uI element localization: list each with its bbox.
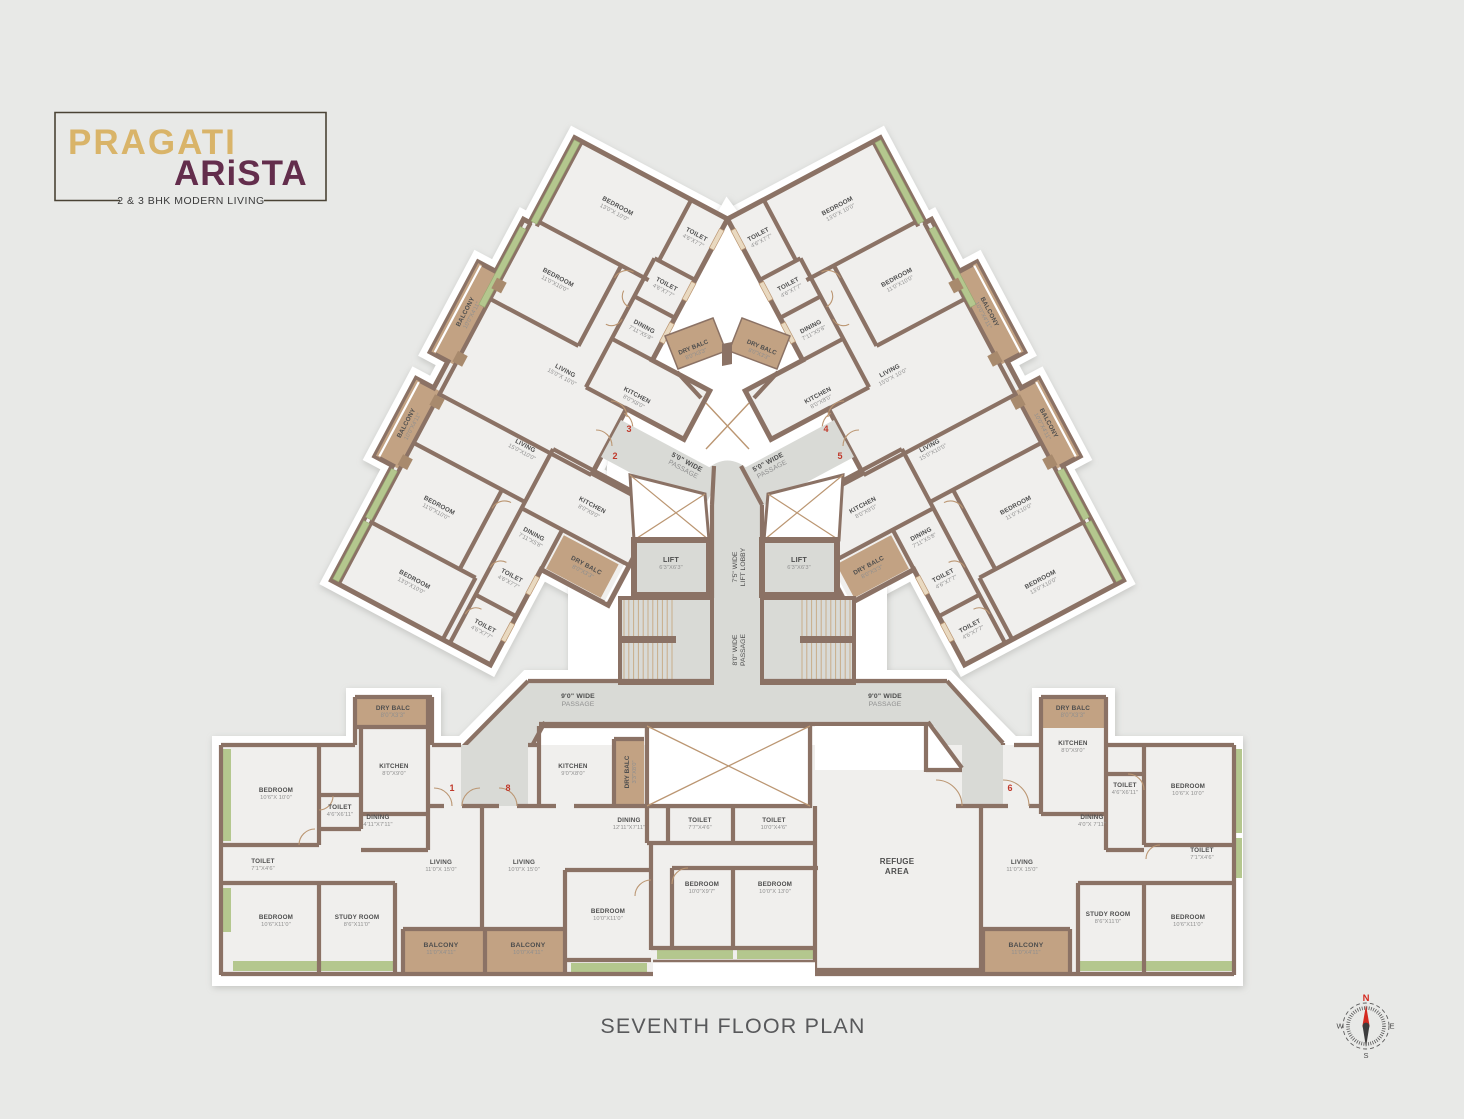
svg-text:10'0"X4'6": 10'0"X4'6" [761, 825, 788, 831]
svg-text:W: W [1336, 1022, 1344, 1031]
svg-text:AREA: AREA [885, 867, 909, 876]
svg-text:DINING: DINING [366, 814, 389, 821]
svg-text:BEDROOM: BEDROOM [259, 914, 293, 921]
svg-text:LIVING: LIVING [513, 859, 535, 866]
svg-text:S: S [1363, 1051, 1368, 1060]
svg-text:8'0"X3'3": 8'0"X3'3" [381, 713, 406, 719]
svg-text:BEDROOM: BEDROOM [259, 787, 293, 794]
svg-text:BEDROOM: BEDROOM [1171, 783, 1205, 790]
svg-text:KITCHEN: KITCHEN [558, 763, 588, 770]
svg-text:BALCONY: BALCONY [510, 942, 545, 949]
svg-text:DRY BALC: DRY BALC [624, 755, 631, 788]
svg-text:LIVING: LIVING [1011, 859, 1033, 866]
svg-text:11'0"X4'11": 11'0"X4'11" [1011, 950, 1040, 956]
svg-text:DRY BALC: DRY BALC [1056, 705, 1090, 712]
svg-text:DINING: DINING [617, 817, 640, 824]
svg-text:10'6"X11'0": 10'6"X11'0" [261, 922, 291, 928]
svg-text:SEVENTH FLOOR PLAN: SEVENTH FLOOR PLAN [600, 1014, 865, 1038]
svg-text:KITCHEN: KITCHEN [379, 763, 409, 770]
svg-text:KITCHEN: KITCHEN [1058, 740, 1088, 747]
svg-text:8'6"X11'0": 8'6"X11'0" [344, 922, 370, 928]
svg-text:LIVING: LIVING [430, 859, 452, 866]
svg-text:9'0" WIDE: 9'0" WIDE [868, 693, 902, 700]
svg-text:5: 5 [837, 451, 842, 461]
svg-text:10'6"X 10'0": 10'6"X 10'0" [260, 795, 292, 801]
svg-text:8: 8 [505, 783, 510, 793]
svg-text:6'3"X6'3": 6'3"X6'3" [659, 565, 683, 571]
svg-text:E: E [1389, 1022, 1394, 1031]
svg-text:11'0"X4'11": 11'0"X4'11" [426, 950, 455, 956]
svg-text:12'11"X7'11": 12'11"X7'11" [613, 825, 646, 831]
svg-text:TOILET: TOILET [688, 817, 711, 824]
svg-text:10'0"X11'0": 10'0"X11'0" [593, 916, 623, 922]
svg-text:4'6"X6'11": 4'6"X6'11" [327, 812, 353, 818]
svg-text:3'3"X8'0": 3'3"X8'0" [632, 760, 638, 783]
svg-text:8'0"X3'3": 8'0"X3'3" [1061, 713, 1086, 719]
svg-text:TOILET: TOILET [251, 858, 274, 865]
svg-text:7'7"X4'6": 7'7"X4'6" [688, 825, 712, 831]
svg-text:8'6"X11'0": 8'6"X11'0" [1095, 919, 1121, 925]
svg-text:TOILET: TOILET [1113, 782, 1136, 789]
svg-text:REFUGE: REFUGE [880, 857, 915, 866]
svg-text:9'0" WIDE: 9'0" WIDE [561, 693, 595, 700]
svg-text:STUDY ROOM: STUDY ROOM [335, 914, 380, 921]
svg-text:4: 4 [823, 424, 828, 434]
svg-text:PASSAGE: PASSAGE [869, 701, 902, 708]
svg-text:10'0"X4'11": 10'0"X4'11" [513, 950, 543, 956]
svg-text:DINING: DINING [1080, 814, 1103, 821]
svg-text:11'0"X 15'0": 11'0"X 15'0" [1006, 867, 1037, 873]
svg-text:7'1"X4'6": 7'1"X4'6" [251, 866, 275, 872]
svg-text:N: N [1363, 993, 1370, 1004]
svg-text:BEDROOM: BEDROOM [591, 908, 625, 915]
svg-text:TOILET: TOILET [1190, 847, 1213, 854]
svg-text:8'0"X9'0": 8'0"X9'0" [1061, 748, 1085, 754]
svg-text:10'6"X 10'0": 10'6"X 10'0" [1172, 791, 1204, 797]
svg-text:BEDROOM: BEDROOM [758, 881, 792, 888]
svg-text:4'11"X7'11": 4'11"X7'11" [363, 822, 392, 828]
svg-text:BEDROOM: BEDROOM [1171, 914, 1205, 921]
svg-text:2 & 3 BHK MODERN LIVING: 2 & 3 BHK MODERN LIVING [117, 195, 264, 207]
svg-text:STUDY ROOM: STUDY ROOM [1086, 911, 1131, 918]
svg-text:6'3"X6'3": 6'3"X6'3" [787, 565, 811, 571]
svg-text:10'0"X 13'0": 10'0"X 13'0" [759, 889, 791, 895]
svg-text:PASSAGE: PASSAGE [740, 634, 747, 666]
svg-text:7'5" WIDE: 7'5" WIDE [732, 551, 739, 582]
svg-text:1: 1 [449, 783, 454, 793]
svg-text:8'0" WIDE: 8'0" WIDE [732, 634, 739, 665]
svg-text:8'0"X9'0": 8'0"X9'0" [382, 771, 406, 777]
svg-text:4'6"X6'11": 4'6"X6'11" [1112, 790, 1138, 796]
svg-text:3: 3 [626, 424, 631, 434]
svg-text:9'0"X8'0": 9'0"X8'0" [561, 771, 585, 777]
svg-text:PASSAGE: PASSAGE [562, 701, 595, 708]
svg-text:BEDROOM: BEDROOM [685, 881, 719, 888]
svg-text:10'0"X 15'0": 10'0"X 15'0" [508, 867, 540, 873]
svg-text:2: 2 [612, 451, 617, 461]
svg-text:10'0"X9'7": 10'0"X9'7" [689, 889, 716, 895]
svg-text:10'6"X11'0": 10'6"X11'0" [1173, 922, 1203, 928]
svg-text:BALCONY: BALCONY [423, 942, 458, 949]
svg-text:LIFT: LIFT [663, 555, 679, 564]
svg-text:6: 6 [1007, 783, 1012, 793]
svg-text:ARiSTA: ARiSTA [174, 154, 308, 193]
svg-text:11'0"X 15'0": 11'0"X 15'0" [425, 867, 456, 873]
svg-text:TOILET: TOILET [328, 804, 351, 811]
svg-text:TOILET: TOILET [762, 817, 785, 824]
svg-text:DRY BALC: DRY BALC [376, 705, 410, 712]
svg-text:7'1"X4'6": 7'1"X4'6" [1190, 855, 1214, 861]
svg-text:BALCONY: BALCONY [1008, 942, 1043, 949]
svg-text:LIFT: LIFT [791, 555, 807, 564]
svg-text:4'0"X 7'11": 4'0"X 7'11" [1078, 822, 1106, 828]
svg-text:LIFT LOBBY: LIFT LOBBY [740, 547, 747, 586]
